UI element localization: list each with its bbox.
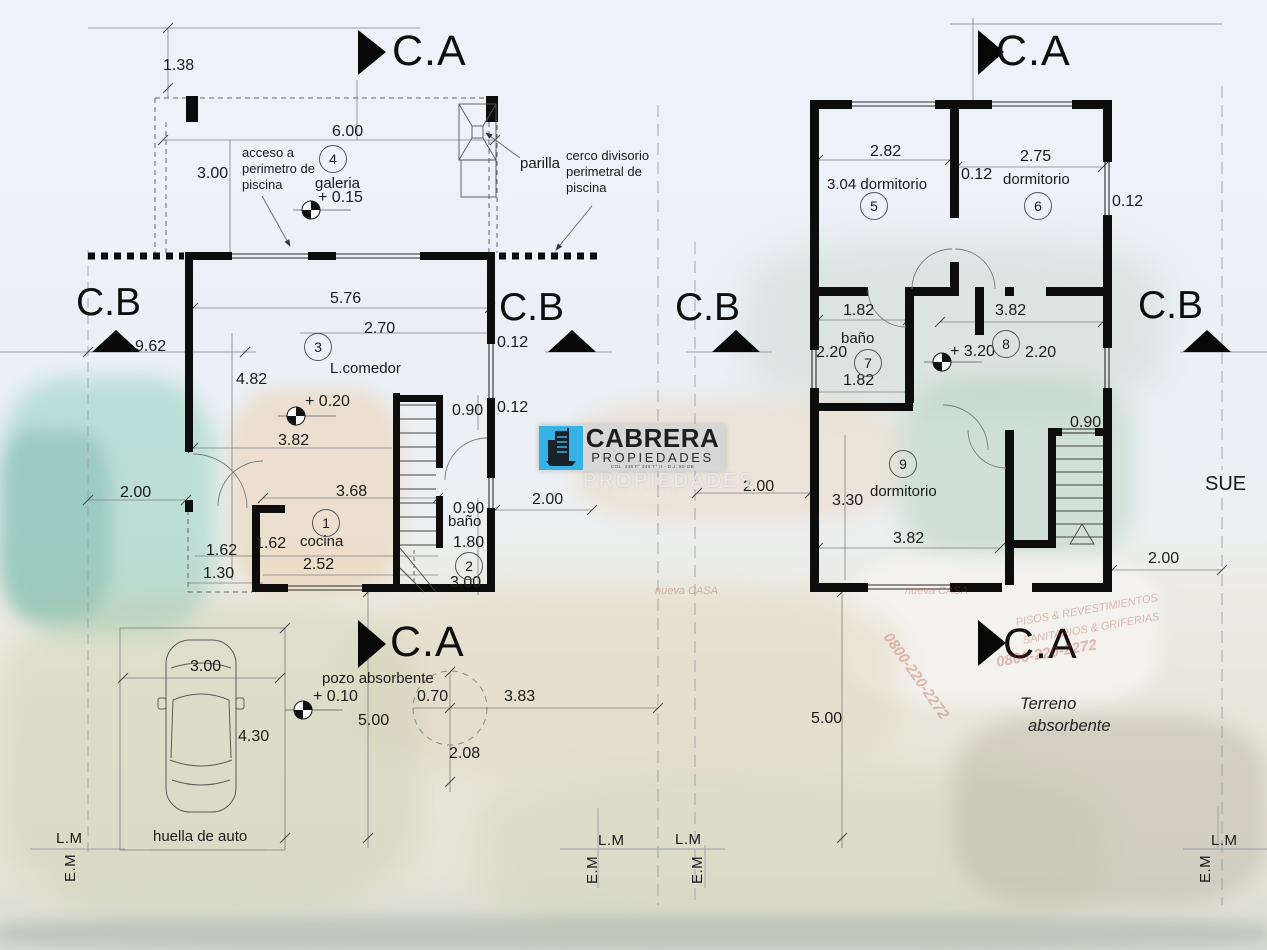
dimension-label: 0.12: [961, 167, 992, 183]
dimension-label: 0.90: [1070, 415, 1101, 431]
dimension-label: 1.62: [255, 536, 286, 552]
dimension-label: 1.82: [843, 303, 874, 319]
watermark-ghost-registration: COL. 348 F° 348 T° II - D.J. 50-GB: [614, 492, 691, 498]
dimension-label: 2.82: [870, 144, 901, 160]
room-number-bubble: 5: [860, 192, 888, 220]
boundary-label: E.M: [1198, 855, 1213, 883]
room-label: dormitorio: [870, 484, 937, 499]
room-label: baño: [448, 514, 481, 529]
dimension-label: 5.76: [330, 291, 361, 307]
dimension-label: 3.00: [190, 659, 221, 675]
dimension-label: 3.82: [278, 433, 309, 449]
dimension-label: 1.38: [163, 58, 194, 74]
room-label: dormitorio: [1003, 172, 1070, 187]
annotation: acceso a: [242, 146, 294, 159]
level-label: + 0.10: [313, 689, 358, 705]
dimension-label: 3.30: [832, 493, 863, 509]
dimension-label: 2.00: [120, 485, 151, 501]
dimension-label: 4.82: [236, 372, 267, 388]
boundary-label: L.M: [56, 831, 83, 846]
room-label: 3.04 dormitorio: [827, 177, 927, 192]
room-number-bubble: 9: [889, 450, 917, 478]
room-label: L.comedor: [330, 361, 401, 376]
dimension-label: 0.12: [497, 400, 528, 416]
photo-text: nueva CASA: [905, 586, 968, 597]
room-label: galeria: [315, 176, 360, 191]
boundary-label: L.M: [1211, 833, 1238, 848]
floor-plan-sheet: C.AC.AC.AC.AC.BC.BC.BC.B1.386.003.005.76…: [0, 0, 1267, 950]
logo-subtitle: PROPIEDADES: [583, 451, 722, 464]
section-marker-label: C.A: [390, 621, 465, 664]
section-marker-label: C.A: [996, 30, 1071, 73]
annotation: absorbente: [1028, 718, 1111, 735]
dimension-label: 2.00: [532, 492, 563, 508]
room-number-bubble: 6: [1024, 192, 1052, 220]
dimension-label: 0.12: [497, 335, 528, 351]
section-marker-label: C.B: [499, 288, 564, 327]
photo-text: nueva CASA: [655, 586, 718, 597]
boundary-label: E.M: [63, 854, 78, 882]
boundary-label: E.M: [690, 856, 705, 884]
dimension-label: 5.00: [358, 713, 389, 729]
dimension-label: 2.70: [364, 321, 395, 337]
room-number-bubble: 8: [992, 330, 1020, 358]
dimension-label: 9.62: [135, 339, 166, 355]
dimension-label: 3.83: [504, 689, 535, 705]
annotation: piscina: [566, 181, 606, 194]
dimension-label: 2.08: [449, 746, 480, 762]
dimension-label: 1.80: [453, 535, 484, 551]
boundary-label: L.M: [675, 832, 702, 847]
logo-brand: CABRERA: [583, 426, 722, 451]
level-label: + 3.20: [950, 344, 995, 360]
dimension-label: 1.30: [203, 566, 234, 582]
level-label: + 0.20: [305, 394, 350, 410]
annotation: huella de auto: [153, 829, 247, 844]
boundary-label: L.M: [598, 833, 625, 848]
dimension-label: 2.20: [1025, 345, 1056, 361]
room-label: baño: [841, 331, 874, 346]
room-number-bubble: 1: [312, 509, 340, 537]
dimension-label: 0.70: [417, 689, 448, 705]
photo-text: 0800-220-2272: [881, 630, 952, 722]
level-label: + 0.15: [318, 190, 363, 206]
dimension-label: 3.68: [336, 484, 367, 500]
dimension-label: 6.00: [332, 124, 363, 140]
annotation: Terreno: [1020, 696, 1076, 713]
annotation: SUE: [1205, 474, 1246, 494]
cabrera-logo: CABRERA PROPIEDADES COL. 348 F° 348 T° I…: [538, 424, 726, 471]
annotation: piscina: [242, 178, 282, 191]
section-marker-label: C.A: [392, 30, 467, 73]
dimension-label: 0.12: [1112, 194, 1143, 210]
annotation: pozo absorbente: [322, 671, 434, 686]
annotation: perimetral de: [566, 165, 642, 178]
section-marker-label: C.B: [675, 288, 740, 327]
room-number-bubble: 7: [854, 349, 882, 377]
dimension-label: 3.82: [995, 303, 1026, 319]
dimension-label: 2.20: [816, 345, 847, 361]
boundary-label: E.M: [585, 856, 600, 884]
section-marker-label: C.B: [76, 283, 141, 322]
dimension-label: 1.62: [206, 543, 237, 559]
annotation: parilla: [520, 156, 560, 171]
room-number-bubble: 2: [455, 552, 483, 580]
room-number-bubble: 4: [319, 145, 347, 173]
room-number-bubble: 3: [304, 333, 332, 361]
dimension-label: 2.75: [1020, 149, 1051, 165]
dimension-label: 5.00: [811, 711, 842, 727]
annotation: perimetro de: [242, 162, 315, 175]
dimension-label: 3.00: [197, 166, 228, 182]
dimension-label: 2.52: [303, 557, 334, 573]
watermark-ghost: PROPIEDADES: [583, 470, 755, 493]
dimension-label: 4.30: [238, 729, 269, 745]
dimension-label: 3.82: [893, 531, 924, 547]
section-marker-label: C.B: [1138, 286, 1203, 325]
dimension-label: 0.90: [452, 403, 483, 419]
annotation: cerco divisorio: [566, 149, 649, 162]
building-icon: [539, 426, 583, 470]
dimension-label: 2.00: [1148, 551, 1179, 567]
